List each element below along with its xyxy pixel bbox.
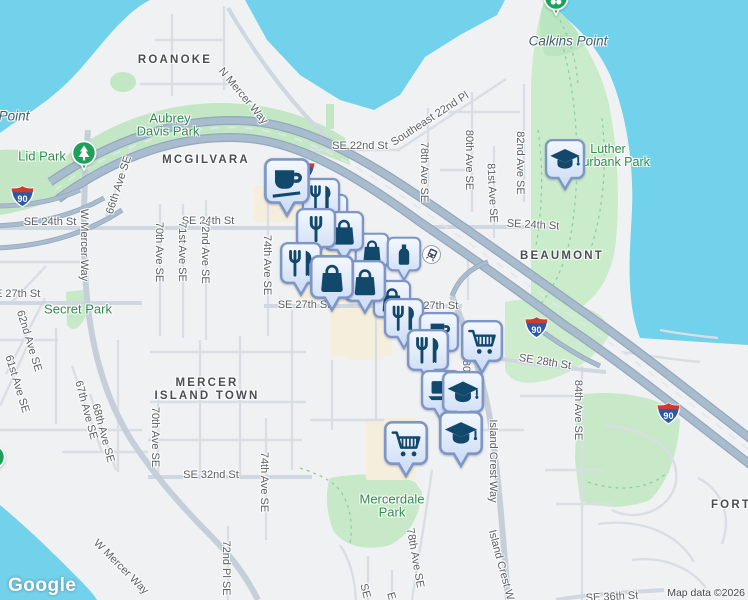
poi-marker-bag[interactable] [309,254,355,314]
map-data-attribution: Map data ©2026 [667,587,745,599]
map-label: Lid Park [18,149,66,164]
map-label: 72nd Pl SE [220,540,232,595]
map-label: SE 36th St [585,590,638,600]
map-label: BEAUMONT [520,250,604,262]
map-label: Island Crest Way [487,419,499,502]
poi-marker-coffee[interactable] [263,157,311,219]
map-label: Park [379,505,406,520]
map-label: MCGILVARA [162,154,250,166]
map-label: 70th Ave SE [153,222,165,282]
interstate-90-shield: 90 [10,185,35,213]
map-label: Davis Park [137,124,200,139]
map-label: SE 32nd St [183,469,239,481]
map-label: 72nd Ave SE [199,220,211,283]
park-marker-tree[interactable] [71,140,97,179]
map-label: SE 24th St [24,216,77,228]
poi-marker-gradcap[interactable] [544,138,586,193]
park-marker-flower[interactable] [543,0,569,24]
poi-marker-bottle[interactable] [386,236,422,283]
svg-text:90: 90 [663,411,673,421]
map-label: Point [0,109,29,124]
park-marker-tree[interactable] [0,444,6,483]
map-label: 71st Ave SE [176,222,188,282]
map-label: 78th Ave SE [418,142,430,202]
map-label: SE 27th St [0,288,40,300]
interstate-90-shield: 90 [524,316,549,344]
map-label: 80th Ave SE [463,130,475,190]
poi-marker-cart[interactable] [383,420,429,480]
map-label: ISLAND TOWN [154,390,259,402]
map-label: ROANOKE [138,54,212,66]
map-label: 70th Ave SE [149,407,161,467]
map-canvas[interactable]: ROANOKEMCGILVARABEAUMONTMERCERISLAND TOW… [0,0,748,600]
map-label: SE 22nd St [332,140,388,152]
train-icon [423,246,439,263]
map-label: FORT [711,499,748,511]
map-label: 74th Ave SE [258,452,270,512]
google-logo[interactable]: Google [8,575,76,597]
poi-marker-cart[interactable] [460,319,504,376]
svg-text:90: 90 [531,325,541,335]
map-label: Calkins Point [529,34,608,49]
map-label: Luther [590,142,625,156]
svg-text:90: 90 [17,194,27,204]
map-label: W Mercer Way [78,209,90,281]
map-label: 82nd Ave SE [514,131,526,194]
map-label: 74th Ave SE [261,235,273,295]
map-label: Secret Park [44,302,112,317]
map-label: 84th Ave SE [572,380,584,440]
interstate-90-shield: 90 [656,402,681,430]
map-label: MERCER [175,377,238,389]
poi-marker-gradcap[interactable] [438,410,484,470]
